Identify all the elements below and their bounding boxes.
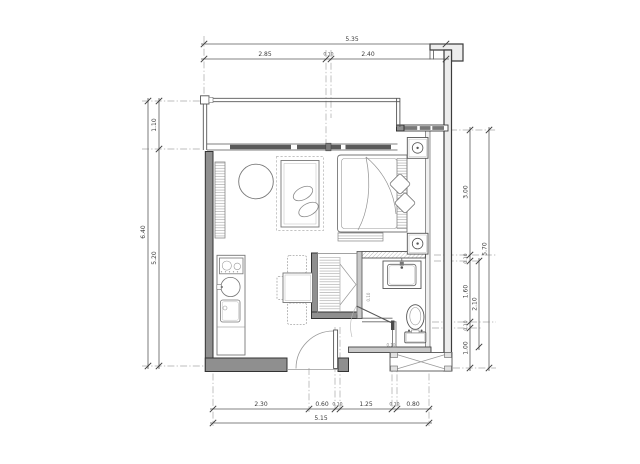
right-wall [444,50,452,371]
dim-top-seg3: 2.40 [361,51,375,58]
ac-condenser-ledge [390,353,452,372]
door-swing-arc [296,331,334,369]
floor-plan-canvas: 5.35 2.85 0.10 2.40 6.40 1.10 5.20 3.00 … [0,0,640,464]
dim-bottom-seg4: 1.25 [359,401,373,408]
door-stop [391,321,395,331]
dim-left-seg1: 1.10 [151,118,158,132]
balcony [201,96,401,151]
toilet [405,305,426,343]
washing-machine [221,300,241,322]
dim-right-mid: 2.10 [472,297,479,311]
cooktop [220,258,244,274]
mullion-column [326,143,331,151]
dim-right-seg3: 1.60 [463,285,470,299]
living-room [215,157,324,239]
nightstand-south [407,233,428,254]
dim-right-seg1: 3.00 [463,185,470,199]
foot-bench [338,233,383,241]
dim-left-overall: 6.40 [140,225,147,239]
double-bed [338,155,416,232]
tv-console [215,162,225,238]
dining-table [283,273,313,303]
bathroom-south-wall [349,347,432,353]
dim-top-overall: 5.35 [345,36,359,43]
dim-right-seg5: 1.00 [463,341,470,355]
kitchen [217,255,245,355]
window-band [404,126,444,130]
balcony-railing [203,98,400,150]
dim-bottom-seg3: 0.10 [332,402,342,408]
sofa [277,157,324,231]
dim-left-seg2: 5.20 [151,251,158,265]
dim-small-1: 0.10 [366,292,371,301]
entry-door [296,330,338,369]
hanging-clothes-icon [320,257,340,311]
railing-corner-post [201,96,210,104]
dim-bottom-overall: 5.15 [314,415,328,422]
dim-small-2: 0.10 [387,343,396,348]
left-wall [205,152,213,372]
dim-bottom-seg1: 2.30 [254,401,268,408]
clothes-rod-icon [340,264,356,305]
dining-chair-south [288,303,307,325]
dining-chair-north [288,256,307,274]
dim-top-seg2: 0.10 [323,52,333,58]
bedroom [338,138,429,255]
dim-right-seg4: 0.10 [463,320,469,330]
faucet-icon [400,262,404,266]
sliding-glass-door [207,143,398,151]
dim-bottom-seg6: 0.80 [406,401,420,408]
dim-right-overall: 5.70 [482,242,489,256]
dining-area [277,256,313,325]
dim-top-seg1: 2.85 [258,51,272,58]
dim-bottom-seg5: 0.10 [389,402,399,408]
dim-bottom-seg2: 0.60 [315,401,329,408]
floor-plan: 5.35 2.85 0.10 2.40 6.40 1.10 5.20 3.00 … [0,0,640,464]
nightstand-north [407,138,428,159]
door-jamb-wall [338,358,349,372]
wardrobe-south-wall [312,312,363,319]
dim-right-seg2: 0.10 [463,253,469,263]
coffee-table [239,164,274,199]
door-swing-arc [351,306,357,337]
vanity-basin [383,258,421,289]
door-leaf [334,330,338,369]
bottom-wall [205,358,287,372]
faucet-icon [217,284,222,289]
wardrobe [318,254,358,315]
